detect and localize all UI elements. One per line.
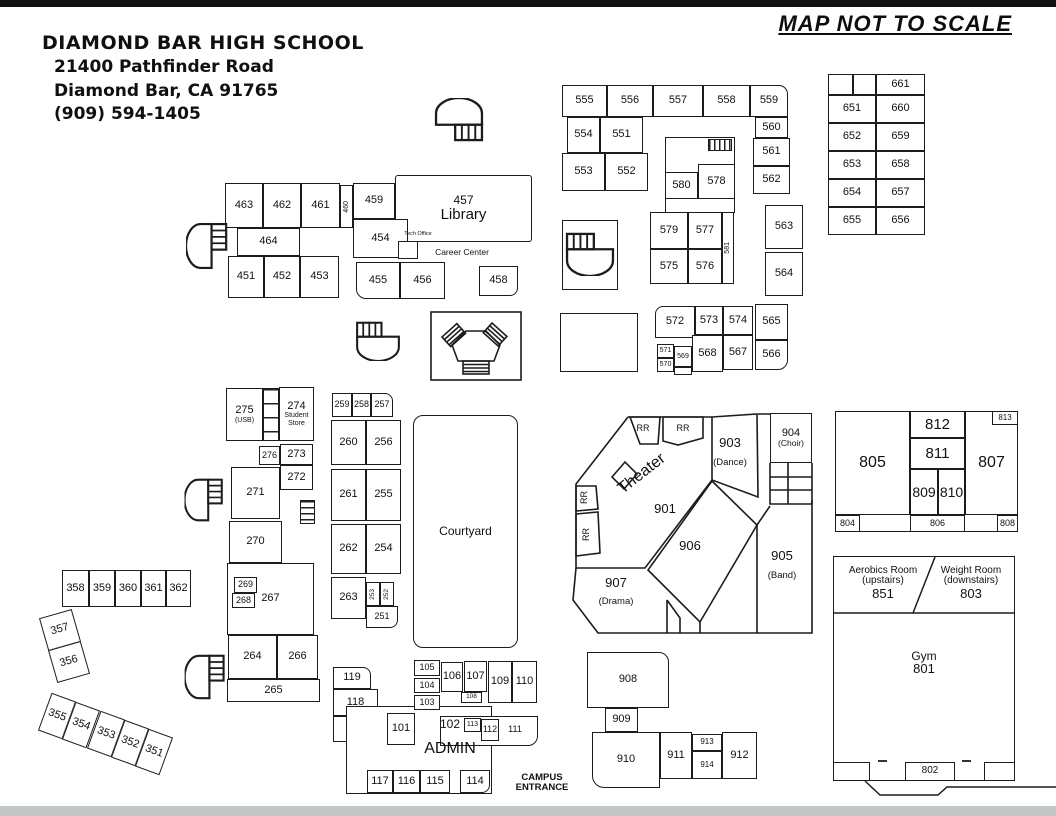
label-dance: (Dance) [702,456,758,470]
room-573: 573 [695,306,723,335]
blank-box [560,313,638,372]
room-555: 555 [562,85,607,117]
stairwell-icon [433,98,485,142]
room-455: 455 [356,262,400,299]
room-658: 658 [876,151,925,179]
room-659: 659 [876,123,925,151]
room-112: 112 [481,719,499,741]
room-810: 810 [938,469,965,515]
room-274: 274Student Store [279,387,314,441]
room-110: 110 [512,661,537,703]
career-center-label: Career Center [426,246,498,258]
room-460: 460 [340,185,353,228]
label-905: 905 [760,547,804,565]
room-105: 105 [414,660,440,676]
room-270: 270 [229,521,282,563]
room-252: 252 [380,582,394,606]
walkway-path [858,778,1056,800]
room-801: Gym801 [898,645,950,681]
room-451: 451 [228,256,264,298]
room-578: 578 [698,164,735,199]
room-553: 553 [562,153,605,191]
room-276: 276 [259,446,280,465]
room-268: 268 [232,593,255,608]
room-911: 911 [660,732,692,779]
room-811: 811 [910,438,965,469]
room-560: 560 [755,117,788,138]
scan-top-border [0,0,1056,7]
room-569: 569 [674,346,692,367]
room-559: 559 [750,85,788,117]
school-header: DIAMOND BAR HIGH SCHOOL 21400 Pathfinder… [42,30,442,127]
room-253: 253 [366,582,380,606]
room-564: 564 [765,252,803,296]
vent-icon [708,139,732,151]
room-453: 453 [300,256,339,298]
room-258: 258 [352,393,371,417]
room-116: 116 [393,770,420,793]
courtyard: Courtyard [413,415,518,648]
room-458: 458 [479,266,518,296]
room-109: 109 [488,661,512,703]
room-580: 580 [665,172,698,199]
door-mark [962,760,971,762]
room-114: 114 [460,770,490,793]
room-652: 652 [828,123,876,151]
room-108: 108 [461,692,482,703]
room-561: 561 [753,138,790,166]
room-264: 264 [228,635,277,679]
label-102: 102 [436,715,464,733]
room-813: 813 [992,411,1018,425]
room-256: 256 [366,420,401,465]
stairwell-icon [186,222,228,270]
room-660: 660 [876,95,925,123]
room-265: 265 [227,679,320,702]
room-557: 557 [653,85,703,117]
room-807: 807 [965,411,1018,515]
label-rr-4: RR [577,517,597,551]
room-572: 572 [655,306,695,338]
room-254: 254 [366,524,401,574]
room-812: 812 [910,411,965,438]
room-651: 651 [828,95,876,123]
tech-office-box [398,241,418,259]
room-575: 575 [650,249,688,284]
label-drama: (Drama) [588,595,644,609]
room-804: 804 [835,515,860,532]
map-not-to-scale-note: MAP NOT TO SCALE [778,11,1012,37]
room-461: 461 [301,183,340,228]
room-361: 361 [141,570,166,607]
room-356: 356 [48,641,90,683]
room-107: 107 [464,661,487,692]
room-273: 273 [280,444,313,465]
room-556: 556 [607,85,653,117]
room-266: 266 [277,635,318,679]
campus-map-page: DIAMOND BAR HIGH SCHOOL 21400 Pathfinder… [0,0,1056,816]
school-address-line1: 21400 Pathfinder Road [54,56,442,79]
label-906: 906 [670,537,710,555]
room-571: 571 [657,344,674,358]
stairwell-icon [184,478,224,522]
label-rr-2: RR [668,419,698,439]
label-band: (Band) [758,569,806,583]
room-255: 255 [366,469,401,521]
room-271: 271 [231,467,280,519]
tech-office-label: Tech Office [396,230,440,239]
outdoor-stage [430,311,522,381]
school-address-line2: Diamond Bar, CA 91765 [54,80,442,103]
room-806: 806 [910,515,965,532]
room-581: 581 [722,212,734,284]
room-910: 910 [592,732,660,788]
room-551: 551 [600,117,643,153]
room-251: 251 [366,606,398,628]
room-566: 566 [755,340,788,370]
cell-blank-2 [853,74,876,95]
room-563: 563 [765,205,803,249]
room-115: 115 [420,770,450,793]
room-459: 459 [353,183,395,219]
room-576: 576 [688,249,722,284]
connector-569 [674,367,692,375]
room-272: 272 [280,465,313,490]
room-809: 809 [910,469,938,515]
room-464: 464 [237,228,300,256]
room-803: Weight Room (downstairs)803 [928,560,1014,606]
room-656: 656 [876,207,925,235]
room-360: 360 [115,570,141,607]
room-552: 552 [605,153,648,191]
room-653: 653 [828,151,876,179]
room-567: 567 [723,335,753,370]
room-579: 579 [650,212,688,249]
room-909: 909 [605,708,638,732]
room-117: 117 [367,770,393,793]
room-808: 808 [997,515,1018,532]
door-mark [878,760,887,762]
room-260: 260 [331,420,366,465]
label-rr-1: RR [630,419,656,439]
room-263: 263 [331,577,366,619]
room-574: 574 [723,306,753,335]
room-805: 805 [835,411,910,515]
label-admin: ADMIN [420,738,480,760]
room-257: 257 [371,393,393,417]
vent-icon [300,500,315,524]
school-phone: (909) 594-1405 [54,103,442,126]
room-275: 275(USB) [226,388,263,441]
room-568: 568 [692,335,723,372]
room-119: 119 [333,667,371,689]
stair-rungs-icon [263,388,279,441]
room-913: 913 [692,734,722,751]
room-101: 101 [387,713,415,745]
room-657: 657 [876,179,925,207]
room-362: 362 [166,570,191,607]
stairwell-icon [353,321,403,361]
room-113: 113 [464,718,481,732]
room-106: 106 [441,662,463,692]
room-570: 570 [657,358,674,372]
room-359: 359 [89,570,115,607]
room-558: 558 [703,85,750,117]
room-554: 554 [567,117,600,153]
label-rr-3: RR [575,486,595,509]
stairwell-icon [184,654,226,700]
school-name: DIAMOND BAR HIGH SCHOOL [42,30,442,56]
cell-blank-1 [828,74,853,95]
room-914: 914 [692,751,722,779]
scan-bottom-border [0,806,1056,816]
room-908: 908 [587,652,669,708]
label-903: 903 [706,434,754,452]
room-912: 912 [722,732,757,779]
stairwell-icon [564,232,616,276]
room-463: 463 [225,183,263,228]
room-577: 577 [688,212,722,249]
campus-entrance: CAMPUS ENTRANCE [508,770,576,796]
label-901: 901 [645,500,685,518]
room-565: 565 [755,304,788,340]
room-103: 103 [414,695,440,710]
room-456: 456 [400,262,445,299]
room-851: Aerobics Room (upstairs)851 [836,560,930,606]
label-907: 907 [594,574,638,592]
room-462: 462 [263,183,301,228]
room-269: 269 [234,577,257,593]
room-562: 562 [753,166,790,194]
room-661: 661 [876,74,925,95]
room-452: 452 [264,256,300,298]
room-259: 259 [332,393,352,417]
room-358: 358 [62,570,89,607]
room-655: 655 [828,207,876,235]
room-262: 262 [331,524,366,574]
room-261: 261 [331,469,366,521]
room-104: 104 [414,678,440,693]
label-111: 111 [504,719,526,741]
room-654: 654 [828,179,876,207]
